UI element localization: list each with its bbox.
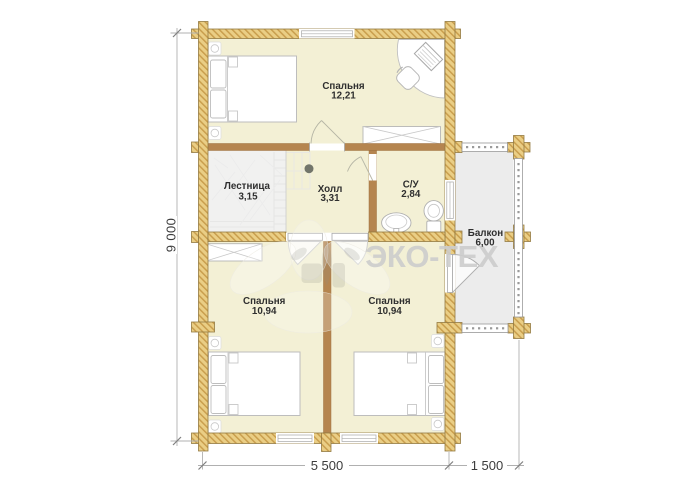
svg-text:12,21: 12,21	[331, 90, 356, 101]
svg-text:1 500: 1 500	[471, 458, 504, 473]
svg-text:3,15: 3,15	[238, 192, 258, 203]
svg-text:5 500: 5 500	[311, 458, 344, 473]
svg-text:10,94: 10,94	[252, 306, 277, 317]
svg-text:3,31: 3,31	[320, 193, 340, 204]
svg-text:9 000: 9 000	[164, 218, 179, 253]
svg-text:10,94: 10,94	[377, 306, 402, 317]
svg-text:Лестница: Лестница	[224, 181, 271, 192]
svg-text:6,00: 6,00	[475, 237, 495, 248]
svg-text:2,84: 2,84	[401, 189, 421, 200]
